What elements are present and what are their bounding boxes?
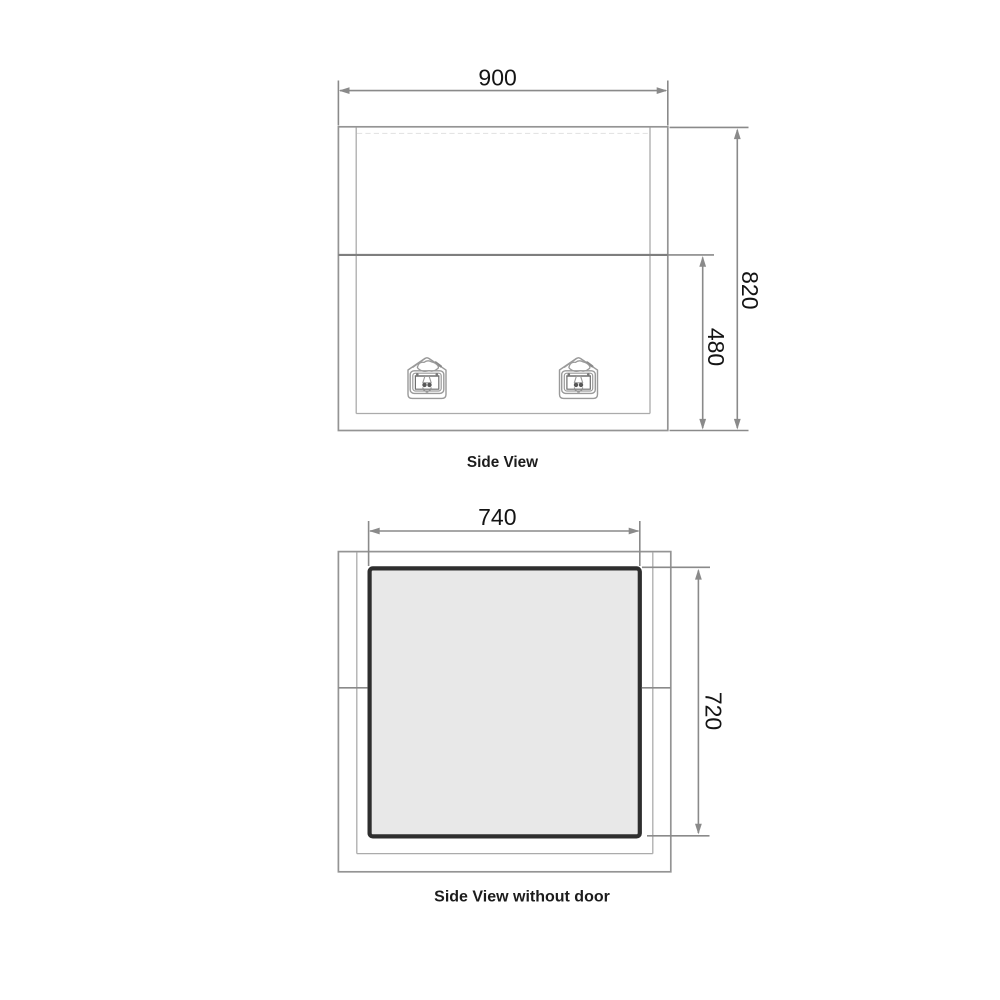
svg-text:Side View: Side View bbox=[467, 454, 538, 471]
svg-text:900: 900 bbox=[478, 65, 516, 91]
svg-text:480: 480 bbox=[703, 328, 729, 366]
svg-text:720: 720 bbox=[700, 692, 726, 730]
svg-text:820: 820 bbox=[737, 271, 763, 309]
svg-text:Side View without door: Side View without door bbox=[434, 888, 610, 905]
svg-text:740: 740 bbox=[478, 504, 516, 530]
